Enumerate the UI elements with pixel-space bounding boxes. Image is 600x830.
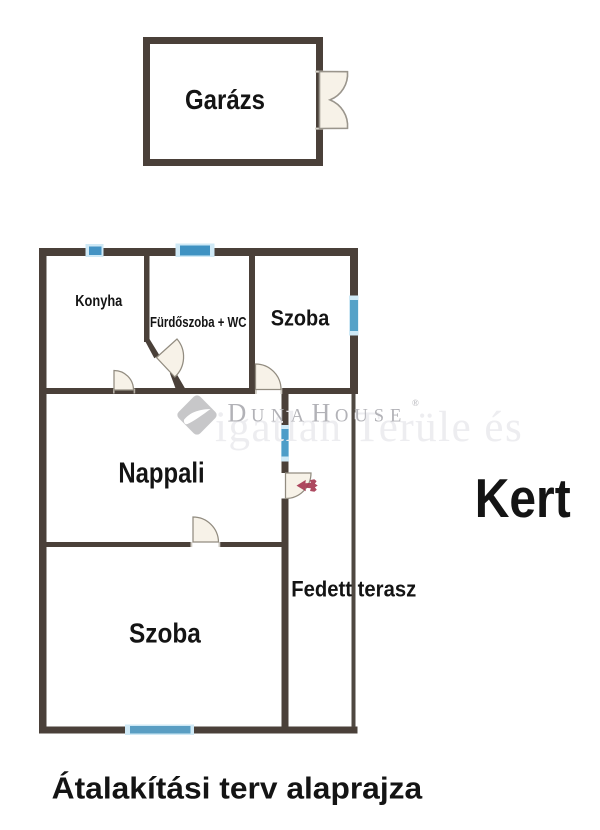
svg-text:Átalakítási terv alaprajza: Átalakítási terv alaprajza (52, 770, 424, 805)
svg-text:H: H (312, 399, 331, 428)
svg-text:OUSE: OUSE (335, 407, 407, 427)
svg-text:Konyha: Konyha (75, 293, 122, 310)
svg-text:Szoba: Szoba (271, 306, 330, 331)
svg-text:Nappali: Nappali (118, 457, 204, 489)
svg-text:D: D (228, 399, 247, 428)
svg-text:®: ® (412, 398, 419, 408)
svg-text:UNA: UNA (251, 407, 311, 427)
svg-text:Fedett terasz: Fedett terasz (291, 576, 416, 601)
svg-text:Kert: Kert (475, 467, 571, 529)
svg-text:Szoba: Szoba (129, 617, 201, 648)
svg-text:Garázs: Garázs (185, 84, 265, 115)
svg-text:Fürdőszoba + WC: Fürdőszoba + WC (150, 314, 247, 331)
